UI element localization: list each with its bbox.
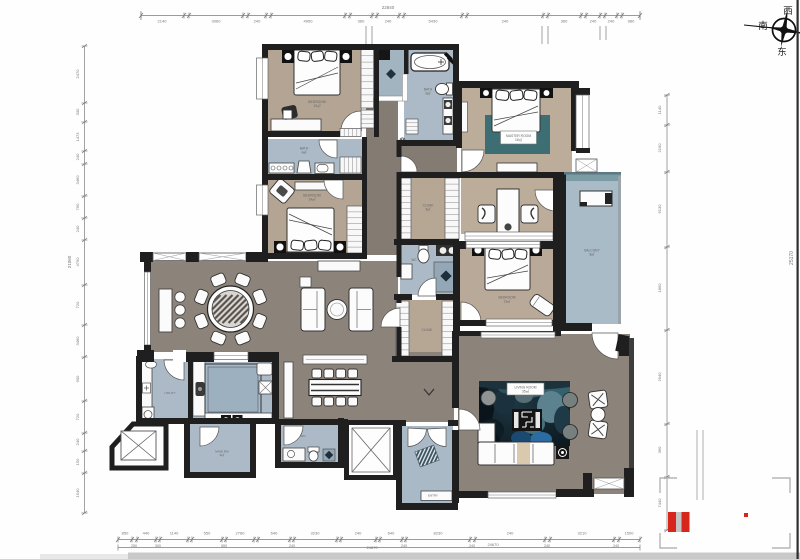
svg-text:360: 360 xyxy=(657,446,662,453)
svg-text:5㎡: 5㎡ xyxy=(426,206,432,211)
svg-text:8230: 8230 xyxy=(434,531,444,536)
svg-text:4750: 4750 xyxy=(75,257,80,267)
svg-text:720: 720 xyxy=(75,301,80,308)
svg-text:1140: 1140 xyxy=(170,531,179,536)
svg-text:21060: 21060 xyxy=(67,255,72,268)
svg-text:6㎡: 6㎡ xyxy=(426,90,432,95)
svg-text:240: 240 xyxy=(254,19,261,24)
svg-text:2780: 2780 xyxy=(236,531,246,536)
svg-text:440: 440 xyxy=(143,531,150,536)
svg-text:25170: 25170 xyxy=(789,251,795,265)
svg-text:南: 南 xyxy=(758,20,768,32)
svg-text:3210: 3210 xyxy=(578,531,588,536)
svg-text:4㎡: 4㎡ xyxy=(302,149,308,154)
svg-text:240: 240 xyxy=(613,544,619,548)
svg-text:980: 980 xyxy=(628,19,635,24)
svg-text:240: 240 xyxy=(289,544,295,548)
svg-text:22840: 22840 xyxy=(382,5,395,10)
svg-text:850: 850 xyxy=(122,531,129,536)
svg-text:360: 360 xyxy=(561,19,568,24)
svg-text:WC: WC xyxy=(411,258,417,262)
svg-text:7440: 7440 xyxy=(657,498,662,508)
svg-text:240: 240 xyxy=(355,531,362,536)
svg-text:240: 240 xyxy=(75,438,80,445)
svg-text:3060: 3060 xyxy=(212,19,222,24)
svg-text:12㎡: 12㎡ xyxy=(313,103,321,108)
svg-text:13㎡: 13㎡ xyxy=(504,298,512,303)
svg-text:240: 240 xyxy=(75,225,80,232)
svg-text:550: 550 xyxy=(204,531,211,536)
svg-text:14㎡: 14㎡ xyxy=(308,196,316,201)
svg-text:640: 640 xyxy=(271,531,278,536)
svg-text:240: 240 xyxy=(401,544,407,548)
svg-text:150: 150 xyxy=(75,458,80,465)
svg-text:240: 240 xyxy=(385,19,392,24)
svg-text:西: 西 xyxy=(783,6,793,17)
svg-text:1860: 1860 xyxy=(657,283,662,293)
svg-text:1500: 1500 xyxy=(625,531,635,536)
svg-text:UTILITY: UTILITY xyxy=(164,391,175,395)
svg-text:240: 240 xyxy=(544,544,550,548)
svg-text:3230: 3230 xyxy=(311,531,321,536)
svg-text:240: 240 xyxy=(469,544,475,548)
svg-text:8㎡: 8㎡ xyxy=(590,251,596,256)
svg-text:2940: 2940 xyxy=(657,372,662,382)
svg-text:6130: 6130 xyxy=(657,204,662,214)
svg-text:24670: 24670 xyxy=(366,545,378,550)
svg-text:300: 300 xyxy=(155,544,161,548)
svg-text:2190: 2190 xyxy=(657,143,662,153)
svg-text:640: 640 xyxy=(388,531,395,536)
svg-text:240: 240 xyxy=(75,153,80,160)
svg-text:18㎡: 18㎡ xyxy=(515,137,523,142)
svg-text:900: 900 xyxy=(75,375,80,382)
svg-text:550: 550 xyxy=(221,544,227,548)
svg-text:35㎡: 35㎡ xyxy=(522,388,530,393)
svg-text:5430: 5430 xyxy=(429,19,439,24)
svg-text:240: 240 xyxy=(507,531,514,536)
svg-text:1473: 1473 xyxy=(75,132,80,142)
svg-text:720: 720 xyxy=(75,413,80,420)
svg-text:1140: 1140 xyxy=(657,105,662,114)
svg-text:ENTRY: ENTRY xyxy=(428,494,438,498)
svg-text:2470: 2470 xyxy=(75,69,80,79)
svg-text:3460: 3460 xyxy=(75,175,80,185)
svg-text:240: 240 xyxy=(502,19,509,24)
svg-text:1540: 1540 xyxy=(75,488,80,498)
svg-text:330: 330 xyxy=(75,108,80,115)
svg-text:790: 790 xyxy=(75,203,80,210)
svg-text:东: 东 xyxy=(777,46,787,58)
svg-text:360: 360 xyxy=(358,19,365,24)
svg-text:2140: 2140 xyxy=(158,19,168,24)
svg-text:CLOAK: CLOAK xyxy=(422,328,434,332)
svg-text:24670: 24670 xyxy=(487,542,499,547)
svg-text:240: 240 xyxy=(590,19,597,24)
svg-text:240: 240 xyxy=(608,19,615,24)
svg-text:250: 250 xyxy=(131,544,137,548)
svg-text:4950: 4950 xyxy=(304,19,314,24)
svg-text:3460: 3460 xyxy=(75,336,80,346)
